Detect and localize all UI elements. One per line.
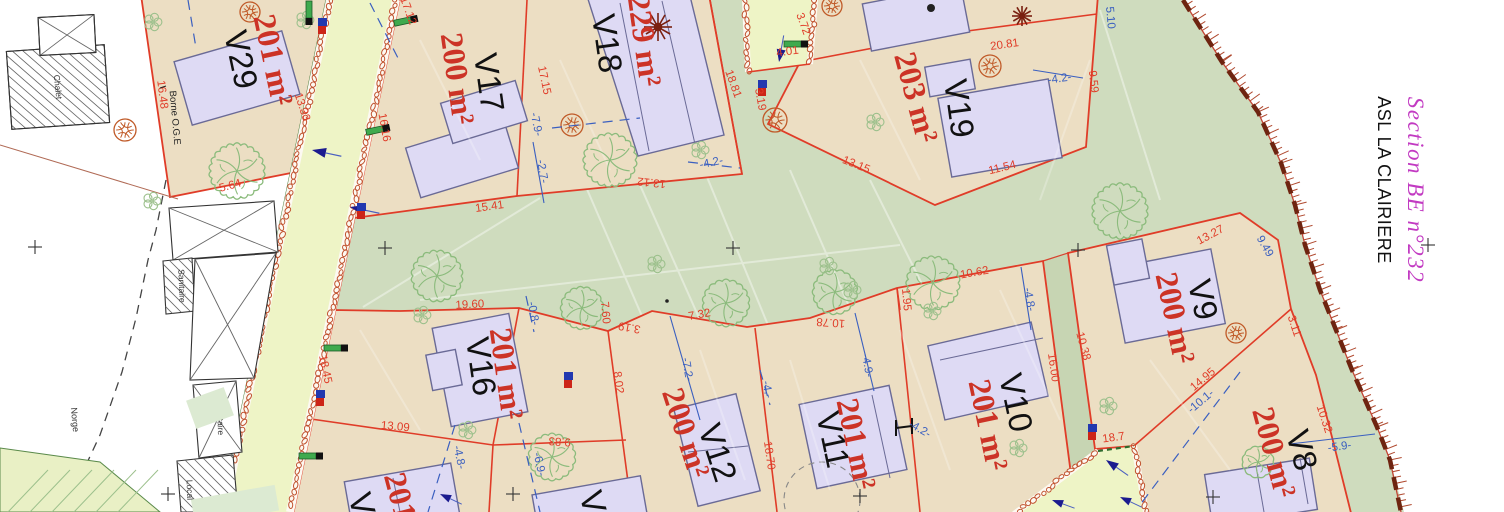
svg-text:1.95: 1.95 — [899, 288, 913, 311]
svg-text:Section BE n°232: Section BE n°232 — [1403, 97, 1428, 284]
svg-text:13.09: 13.09 — [380, 420, 410, 434]
svg-text:Norge: Norge — [69, 407, 81, 432]
svg-text:9.59: 9.59 — [1086, 70, 1100, 94]
svg-text:ASL LA CLAIRIERE: ASL LA CLAIRIERE — [1374, 96, 1394, 263]
svg-text:5.10: 5.10 — [1103, 6, 1117, 29]
svg-text:7.60: 7.60 — [598, 301, 612, 324]
svg-text:Sanitaire: Sanitaire — [176, 269, 187, 303]
svg-text:10.78: 10.78 — [816, 315, 846, 329]
svg-text:9.83: 9.83 — [548, 434, 571, 448]
svg-text:19.60: 19.60 — [455, 298, 484, 311]
svg-text:Local: Local — [185, 480, 196, 501]
